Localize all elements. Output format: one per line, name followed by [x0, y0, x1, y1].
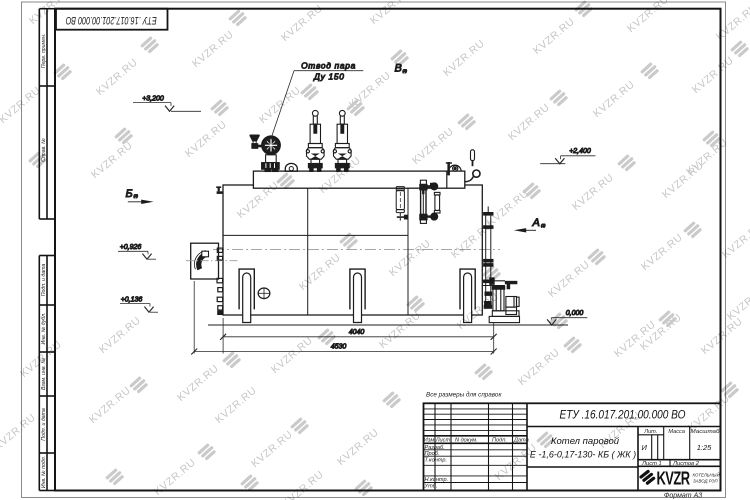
svg-text:4530: 4530: [331, 344, 347, 351]
svg-text:Е -1,6-0,17-130- КБ ( ЖК ): Е -1,6-0,17-130- КБ ( ЖК ): [530, 450, 636, 460]
svg-text:Перв. примен.: Перв. примен.: [41, 34, 47, 68]
svg-text:Проб.: Проб.: [425, 451, 440, 457]
svg-text:ЗАВОД РЭП: ЗАВОД РЭП: [693, 479, 719, 484]
svg-text:Разраб.: Разраб.: [425, 445, 445, 451]
svg-text:Подп. и дата: Подп. и дата: [41, 264, 47, 297]
svg-text:0,000: 0,000: [566, 310, 584, 317]
svg-text:Лист 1: Лист 1: [641, 461, 662, 467]
svg-text:Формат А3: Формат А3: [664, 493, 702, 500]
svg-text:Утб.: Утб.: [424, 484, 438, 490]
svg-text:ЕТУ .16.017.201.00.000 ВО: ЕТУ .16.017.201.00.000 ВО: [65, 14, 156, 26]
svg-text:(2): (2): [541, 223, 545, 227]
svg-text:Лит.: Лит.: [643, 429, 657, 435]
svg-text:KVZR: KVZR: [657, 468, 690, 489]
svg-text:Инв. № дубл.: Инв. № дубл.: [41, 313, 47, 345]
svg-text:4040: 4040: [349, 329, 365, 336]
svg-text:+2,400: +2,400: [569, 148, 591, 155]
svg-text:И: И: [642, 443, 648, 452]
svg-text:КОТЕЛЬНЫЙ: КОТЕЛЬНЫЙ: [693, 473, 721, 478]
svg-text:+3,200: +3,200: [142, 95, 164, 102]
svg-text:Изм.Лист: Изм.Лист: [424, 438, 451, 444]
svg-text:Подп.: Подп.: [492, 438, 507, 444]
svg-text:+0,136: +0,136: [121, 296, 143, 303]
svg-text:Отвод пара: Отвод пара: [301, 61, 356, 71]
svg-text:Инв. № подл.: Инв. № подл.: [41, 456, 47, 488]
svg-text:Б: Б: [126, 188, 133, 200]
svg-text:(2): (2): [134, 194, 138, 198]
svg-text:Все размеры для справок: Все размеры для справок: [426, 391, 502, 399]
svg-text:N докум.: N докум.: [455, 438, 478, 444]
svg-text:+0,926: +0,926: [120, 244, 142, 251]
svg-text:Масса: Масса: [668, 429, 685, 435]
svg-text:Т.контр.: Т.контр.: [425, 457, 448, 463]
svg-text:1:25: 1:25: [697, 443, 712, 452]
svg-text:(2): (2): [403, 69, 407, 73]
svg-text:Дата: Дата: [513, 438, 529, 444]
svg-text:Листов 2: Листов 2: [672, 461, 700, 467]
svg-text:А: А: [532, 217, 540, 229]
svg-text:Ду 150: Ду 150: [313, 72, 345, 82]
svg-text:Н.контр.: Н.контр.: [425, 477, 449, 483]
svg-text:Подп. и дата: Подп. и дата: [41, 408, 47, 441]
